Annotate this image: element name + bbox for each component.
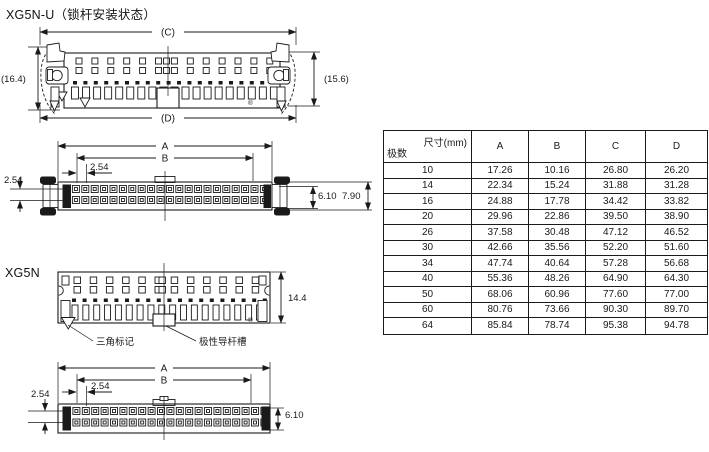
- dim-label-pitch: 2.54: [91, 381, 110, 392]
- column-header-c: C: [586, 131, 646, 163]
- poles-cell: 20: [384, 210, 472, 226]
- registered-mark: ®: [248, 316, 253, 324]
- poles-cell: 40: [384, 272, 472, 288]
- dim-label-a: A: [162, 142, 169, 153]
- dimension-table: 尺寸(mm) 极数 A B C D 1017.2610.1626.8026.20…: [383, 130, 708, 335]
- dimension-value-cell: 10.16: [529, 163, 586, 179]
- lock-lever: [268, 43, 295, 114]
- dimension-value-cell: 48.26: [529, 272, 586, 288]
- dimension-value-cell: 33.82: [646, 194, 707, 210]
- end-detail: [59, 276, 70, 322]
- poles-cell: 60: [384, 303, 472, 319]
- dim-label-b: B: [161, 376, 168, 387]
- dimension-value-cell: 31.88: [586, 179, 646, 195]
- dimension-value-cell: 89.70: [646, 303, 707, 319]
- dimension-value-cell: 26.20: [646, 163, 707, 179]
- column-header-a: A: [472, 131, 529, 163]
- triangle-mark: [80, 98, 90, 107]
- drawing-xg5n-u-top: A B 2.54 2.54 6.10 7.90: [4, 140, 372, 221]
- header-poles: 极数: [387, 145, 407, 160]
- registered-mark: ®: [248, 99, 253, 107]
- dimension-value-cell: 34.42: [586, 194, 646, 210]
- poles-cell: 34: [384, 256, 472, 272]
- dim-label-16-4: (16.4): [1, 74, 26, 85]
- dimension-value-cell: 64.90: [586, 272, 646, 288]
- dim-label-b: B: [162, 154, 169, 165]
- dimension-value-cell: 85.84: [472, 318, 529, 334]
- datasheet-page: XG5N-U（锁杆安装状态） XG5N: [0, 0, 709, 452]
- dimension-value-cell: 42.66: [472, 241, 529, 257]
- callout-polarity-guide: 极性导杆槽: [199, 336, 247, 348]
- dimension-value-cell: 22.86: [529, 210, 586, 226]
- dimension-value-cell: 80.76: [472, 303, 529, 319]
- dimension-value-cell: 24.88: [472, 194, 529, 210]
- poles-cell: 10: [384, 163, 472, 179]
- dimension-value-cell: 29.96: [472, 210, 529, 226]
- column-header-b: B: [529, 131, 586, 163]
- dimension-value-cell: 31.28: [646, 179, 707, 195]
- poles-cell: 26: [384, 225, 472, 241]
- column-header-d: D: [646, 131, 707, 163]
- dimension-value-cell: 77.00: [646, 287, 707, 303]
- dim-label-14-4: 14.4: [288, 293, 307, 304]
- dimension-value-cell: 55.36: [472, 272, 529, 288]
- dim-label-row-pitch: 2.54: [4, 175, 23, 186]
- drawing-xg5n-front: ® 14.4 三角标记 极性导杆槽: [58, 263, 307, 348]
- dim-label-7-90: 7.90: [342, 191, 361, 202]
- poles-cell: 30: [384, 241, 472, 257]
- dimension-value-cell: 47.12: [586, 225, 646, 241]
- dim-label-6-10: 6.10: [285, 410, 304, 421]
- dimension-value-cell: 38.90: [646, 210, 707, 226]
- dim-label-c: (C): [161, 28, 175, 39]
- dimension-value-cell: 17.26: [472, 163, 529, 179]
- lever-end: [40, 177, 58, 216]
- dimension-value-cell: 64.30: [646, 272, 707, 288]
- dimension-value-cell: 51.60: [646, 241, 707, 257]
- dimension-value-cell: 52.20: [586, 241, 646, 257]
- drawing-xg5n-u-front: ® (C) (D) (16.4) (15.6): [1, 27, 349, 125]
- callout-triangle-mark: 三角标记: [96, 336, 135, 348]
- dimension-value-cell: 73.66: [529, 303, 586, 319]
- dimension-value-cell: 68.06: [472, 287, 529, 303]
- dimension-value-cell: 22.34: [472, 179, 529, 195]
- dim-label-15-6: (15.6): [324, 74, 349, 85]
- lever-end: [272, 177, 290, 216]
- dimension-value-cell: 77.60: [586, 287, 646, 303]
- poles-cell: 16: [384, 194, 472, 210]
- dimension-value-cell: 26.80: [586, 163, 646, 179]
- dimension-value-cell: 40.64: [529, 256, 586, 272]
- dim-label-pitch: 2.54: [90, 162, 109, 173]
- dimension-value-cell: 30.48: [529, 225, 586, 241]
- dim-label-a: A: [161, 364, 168, 375]
- dim-label-d: (D): [161, 114, 175, 125]
- poles-cell: 50: [384, 287, 472, 303]
- dimension-value-cell: 37.58: [472, 225, 529, 241]
- dimension-value-cell: 57.28: [586, 256, 646, 272]
- dimension-value-cell: 46.52: [646, 225, 707, 241]
- dimension-value-cell: 94.78: [646, 318, 707, 334]
- poles-cell: 14: [384, 179, 472, 195]
- poles-cell: 64: [384, 318, 472, 334]
- dimension-value-cell: 47.74: [472, 256, 529, 272]
- dimension-value-cell: 60.96: [529, 287, 586, 303]
- table-corner-header: 尺寸(mm) 极数: [384, 131, 472, 163]
- dim-label-row-pitch: 2.54: [31, 389, 50, 400]
- drawing-xg5n-top: A B 2.54 2.54 6.10: [28, 362, 304, 440]
- dimension-value-cell: 39.50: [586, 210, 646, 226]
- dimension-value-cell: 56.68: [646, 256, 707, 272]
- connector-drawings: ® (C) (D) (16.4) (15.6): [0, 0, 380, 452]
- dimension-value-cell: 95.38: [586, 318, 646, 334]
- dimension-value-cell: 35.56: [529, 241, 586, 257]
- dimension-value-cell: 78.74: [529, 318, 586, 334]
- dimension-value-cell: 90.30: [586, 303, 646, 319]
- header-dimension: 尺寸(mm): [424, 134, 467, 149]
- dim-label-6-10: 6.10: [318, 191, 337, 202]
- dimension-value-cell: 17.78: [529, 194, 586, 210]
- dimension-value-cell: 15.24: [529, 179, 586, 195]
